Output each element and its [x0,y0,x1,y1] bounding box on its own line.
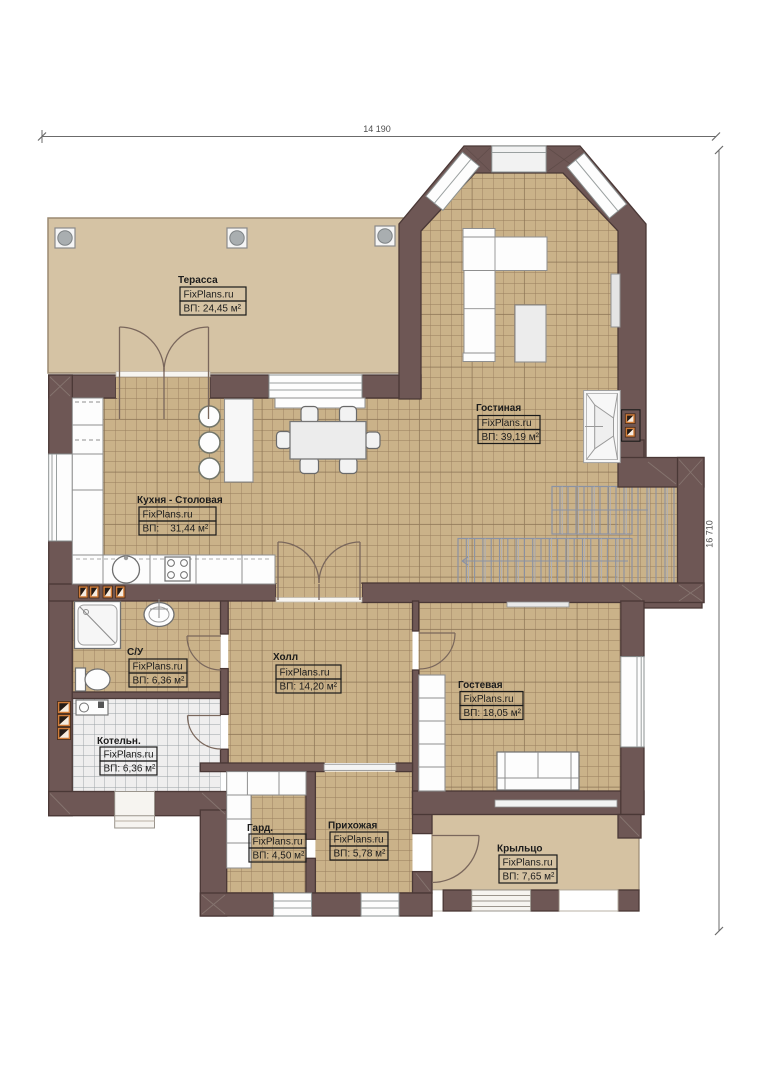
svg-text:Гостиная: Гостиная [476,403,521,414]
svg-text:FixPlans.ru: FixPlans.ru [334,835,384,846]
svg-text:Терасса: Терасса [178,275,218,286]
svg-text:Гостевая: Гостевая [458,680,503,691]
svg-text:FixPlans.ru: FixPlans.ru [143,510,193,521]
svg-text:FixPlans.ru: FixPlans.ru [503,858,553,869]
svg-text:ВП: 4,50 м²: ВП: 4,50 м² [253,851,306,862]
svg-text:С/У: С/У [127,647,144,658]
svg-text:ВП: 6,36 м²: ВП: 6,36 м² [133,676,186,687]
svg-text:ВП: 14,20 м²: ВП: 14,20 м² [280,682,338,693]
svg-text:14 190: 14 190 [363,124,391,134]
svg-text:ВП: 39,19 м²: ВП: 39,19 м² [482,432,540,443]
svg-text:FixPlans.ru: FixPlans.ru [184,290,234,301]
svg-text:Кухня - Столовая: Кухня - Столовая [137,495,223,506]
svg-text:ВП: 31,44 м²: ВП: 31,44 м² [143,524,209,535]
svg-text:16 710: 16 710 [705,520,715,548]
svg-text:Гард.: Гард. [247,823,273,834]
svg-text:FixPlans.ru: FixPlans.ru [133,662,183,673]
svg-text:Котельн.: Котельн. [97,736,141,747]
svg-text:ВП: 6,36 м²: ВП: 6,36 м² [104,764,157,775]
svg-text:FixPlans.ru: FixPlans.ru [280,668,330,679]
svg-text:Холл: Холл [273,652,298,663]
svg-text:ВП: 5,78 м²: ВП: 5,78 м² [334,849,387,860]
svg-text:FixPlans.ru: FixPlans.ru [104,750,154,761]
svg-text:Крыльцо: Крыльцо [497,844,543,855]
svg-text:FixPlans.ru: FixPlans.ru [482,418,532,429]
svg-text:FixPlans.ru: FixPlans.ru [253,837,303,848]
svg-text:ВП: 18,05 м²: ВП: 18,05 м² [464,708,522,719]
svg-text:FixPlans.ru: FixPlans.ru [464,694,514,705]
svg-text:ВП: 7,65 м²: ВП: 7,65 м² [503,872,556,883]
svg-text:Прихожая: Прихожая [328,821,378,832]
svg-text:ВП: 24,45 м²: ВП: 24,45 м² [184,304,242,315]
